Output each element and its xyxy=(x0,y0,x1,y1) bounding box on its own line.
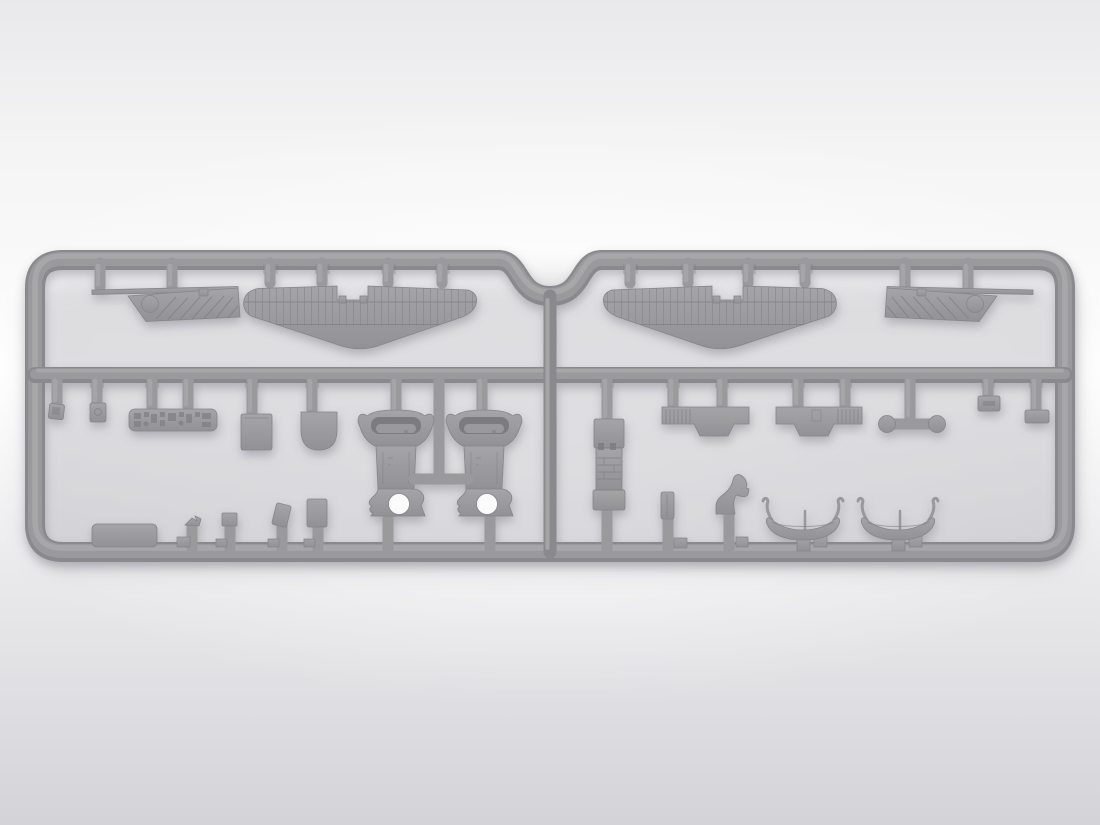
part-cockpit-floor-column xyxy=(593,419,625,510)
studio-background xyxy=(0,0,1100,825)
part-bulkhead-square xyxy=(241,414,272,450)
part-square-fitting xyxy=(222,513,237,526)
part-small-fitting-2 xyxy=(90,403,106,422)
part-small-box-1 xyxy=(978,396,1000,411)
part-small-box-2 xyxy=(1025,410,1049,423)
sprue-render xyxy=(0,0,1100,825)
part-small-fitting-1 xyxy=(48,403,64,419)
part-stick-fitting xyxy=(661,492,674,519)
sprue-center-runner xyxy=(548,296,551,552)
part-instrument-panel xyxy=(129,409,217,431)
part-long-block xyxy=(92,524,157,547)
part-bulkhead-rounded xyxy=(301,412,337,450)
part-tall-plate xyxy=(307,499,327,527)
